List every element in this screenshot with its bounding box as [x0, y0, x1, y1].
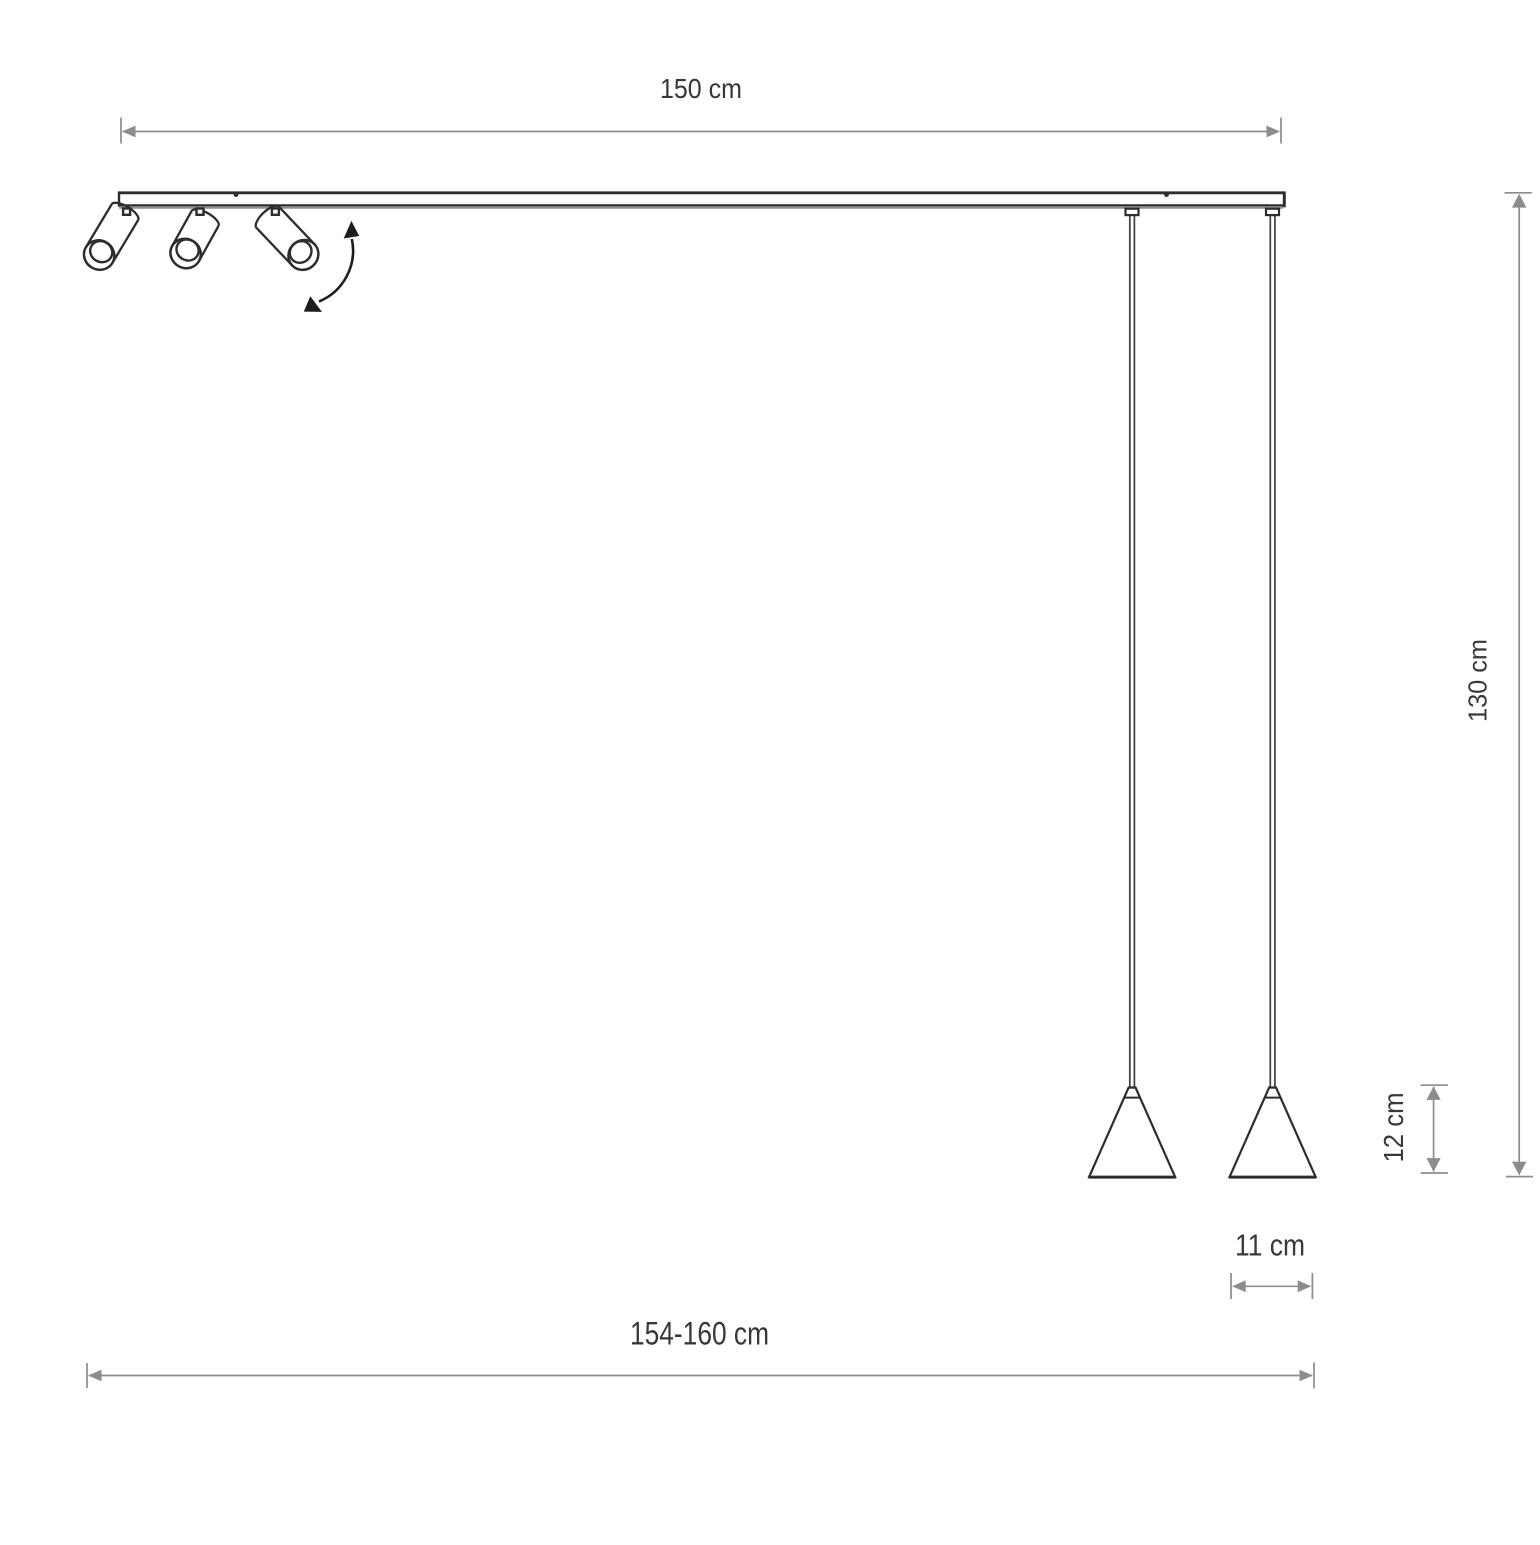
svg-text:154-160 cm: 154-160 cm	[630, 1316, 769, 1352]
svg-text:11 cm: 11 cm	[1235, 1228, 1305, 1263]
svg-text:130 cm: 130 cm	[1463, 639, 1493, 722]
svg-text:150 cm: 150 cm	[660, 73, 742, 104]
svg-text:12 cm: 12 cm	[1378, 1093, 1409, 1163]
